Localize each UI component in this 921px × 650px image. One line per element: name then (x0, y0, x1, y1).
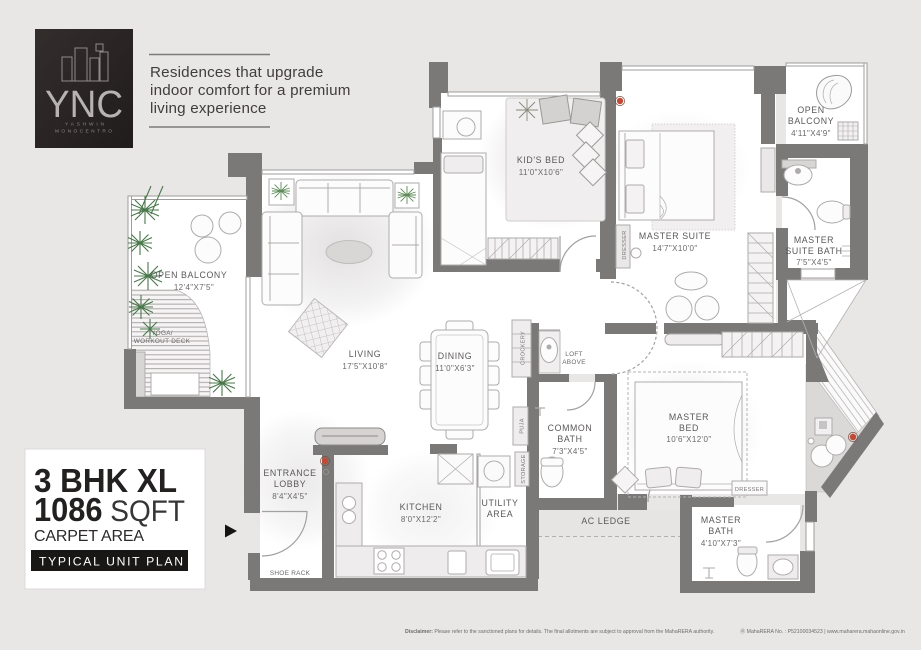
svg-text:SHOE RACK: SHOE RACK (270, 570, 311, 577)
svg-text:11'0"X10'6": 11'0"X10'6" (519, 168, 564, 177)
svg-text:LOBBY: LOBBY (274, 479, 306, 489)
svg-text:AC LEDGE: AC LEDGE (581, 516, 630, 526)
svg-text:8'4"X4'5": 8'4"X4'5" (272, 492, 307, 501)
svg-text:BATH: BATH (557, 434, 582, 444)
svg-text:LOFT: LOFT (565, 351, 583, 358)
svg-text:OPEN: OPEN (797, 105, 824, 115)
svg-text:ABOVE: ABOVE (562, 359, 586, 366)
svg-text:MASTER SUITE: MASTER SUITE (639, 231, 711, 241)
svg-text:COMMON: COMMON (548, 423, 593, 433)
svg-text:WORKOUT DECK: WORKOUT DECK (134, 338, 191, 345)
svg-text:7'3"X4'5": 7'3"X4'5" (552, 447, 587, 456)
svg-text:7'5"X4'5": 7'5"X4'5" (796, 258, 831, 267)
svg-text:KID'S BED: KID'S BED (517, 155, 565, 165)
svg-text:SUITE BATH: SUITE BATH (785, 246, 842, 256)
svg-text:BED: BED (679, 423, 699, 433)
svg-text:DRESSER: DRESSER (735, 487, 764, 493)
svg-text:OPEN BALCONY: OPEN BALCONY (151, 270, 228, 280)
svg-text:MASTER: MASTER (669, 412, 709, 422)
svg-text:indoor comfort for a premium: indoor comfort for a premium (150, 82, 351, 99)
svg-text:CROCKERY: CROCKERY (521, 331, 527, 365)
svg-text:PUJA: PUJA (520, 418, 526, 434)
svg-text:YNC: YNC (45, 84, 123, 126)
svg-text:ENTRANCE: ENTRANCE (263, 468, 316, 478)
svg-text:Residences that upgrade: Residences that upgrade (150, 64, 323, 81)
svg-text:17'5"X10'8": 17'5"X10'8" (342, 362, 387, 371)
svg-text:DINING: DINING (438, 351, 472, 361)
svg-text:LIVING: LIVING (349, 349, 381, 359)
svg-text:Ⓡ MahaRERA No. : P52100034523: Ⓡ MahaRERA No. : P52100034523 | www.maha… (740, 627, 905, 635)
svg-text:MASTER: MASTER (794, 235, 834, 245)
svg-text:4'10"X7'3": 4'10"X7'3" (701, 539, 741, 548)
svg-text:14'7"X10'0": 14'7"X10'0" (652, 244, 697, 253)
svg-text:8'0"X12'2": 8'0"X12'2" (401, 515, 441, 524)
svg-text:DRESSER: DRESSER (622, 230, 628, 259)
svg-text:CARPET AREA: CARPET AREA (34, 528, 144, 545)
svg-text:4'11"X4'9": 4'11"X4'9" (791, 129, 831, 138)
svg-text:AREA: AREA (487, 509, 513, 519)
svg-text:UTILITY: UTILITY (482, 498, 519, 508)
svg-text:10'6"X12'0": 10'6"X12'0" (666, 435, 711, 444)
svg-text:STORAGE: STORAGE (521, 454, 527, 483)
svg-text:1086 SQFT: 1086 SQFT (34, 491, 185, 528)
svg-text:BATH: BATH (708, 526, 733, 536)
svg-text:KITCHEN: KITCHEN (400, 502, 443, 512)
svg-text:12'4"X7'5": 12'4"X7'5" (174, 283, 214, 292)
svg-text:TYPICAL UNIT PLAN: TYPICAL UNIT PLAN (39, 555, 183, 569)
svg-text:living experience: living experience (150, 100, 267, 117)
svg-text:MASTER: MASTER (701, 515, 741, 525)
svg-text:Disclaimer: Please refer to th: Disclaimer: Please refer to the sanction… (405, 629, 714, 635)
svg-text:11'0"X6'3": 11'0"X6'3" (435, 364, 475, 373)
svg-text:BALCONY: BALCONY (788, 116, 834, 126)
svg-text:YOGA/: YOGA/ (151, 330, 173, 337)
